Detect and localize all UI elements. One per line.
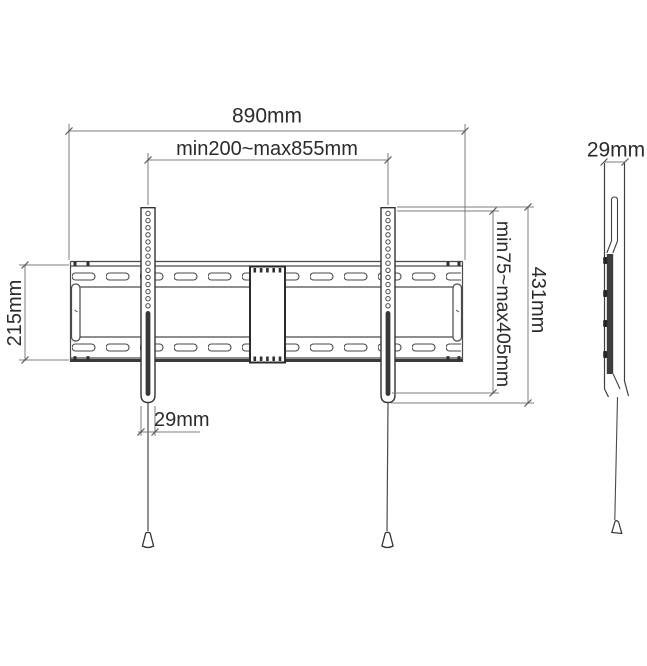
left-arm-slot xyxy=(146,311,151,396)
technical-drawing-canvas: 890mm min200~max855mm 215mm 29mm min75~m… xyxy=(0,0,647,666)
dim-label-height-range: min75~max405mm xyxy=(492,221,512,387)
side-screw-heads xyxy=(603,257,607,358)
dim-label-width-range: min200~max855mm xyxy=(176,139,358,159)
right-arm xyxy=(381,208,395,403)
right-cord-pull xyxy=(382,532,393,547)
center-column xyxy=(250,267,285,363)
dim-label-depth: 29mm xyxy=(587,140,645,161)
plate-left-end-cap xyxy=(72,284,81,341)
plate-right-end-cap xyxy=(453,284,462,341)
left-cord-pull xyxy=(142,532,153,547)
side-view xyxy=(603,163,628,534)
wall-mount-drawing xyxy=(0,0,647,666)
dim-label-arm-height: 431mm xyxy=(528,267,548,334)
side-cord-pull xyxy=(612,521,622,534)
dim-label-arm-width: 29mm xyxy=(154,410,210,430)
right-cord xyxy=(387,403,388,532)
dim-label-plate-height: 215mm xyxy=(5,280,25,347)
side-arm-profile xyxy=(607,254,613,374)
side-cord xyxy=(615,397,618,520)
left-arm xyxy=(141,208,155,403)
dim-label-total-width: 890mm xyxy=(232,106,302,127)
right-arm-slot xyxy=(386,311,391,396)
